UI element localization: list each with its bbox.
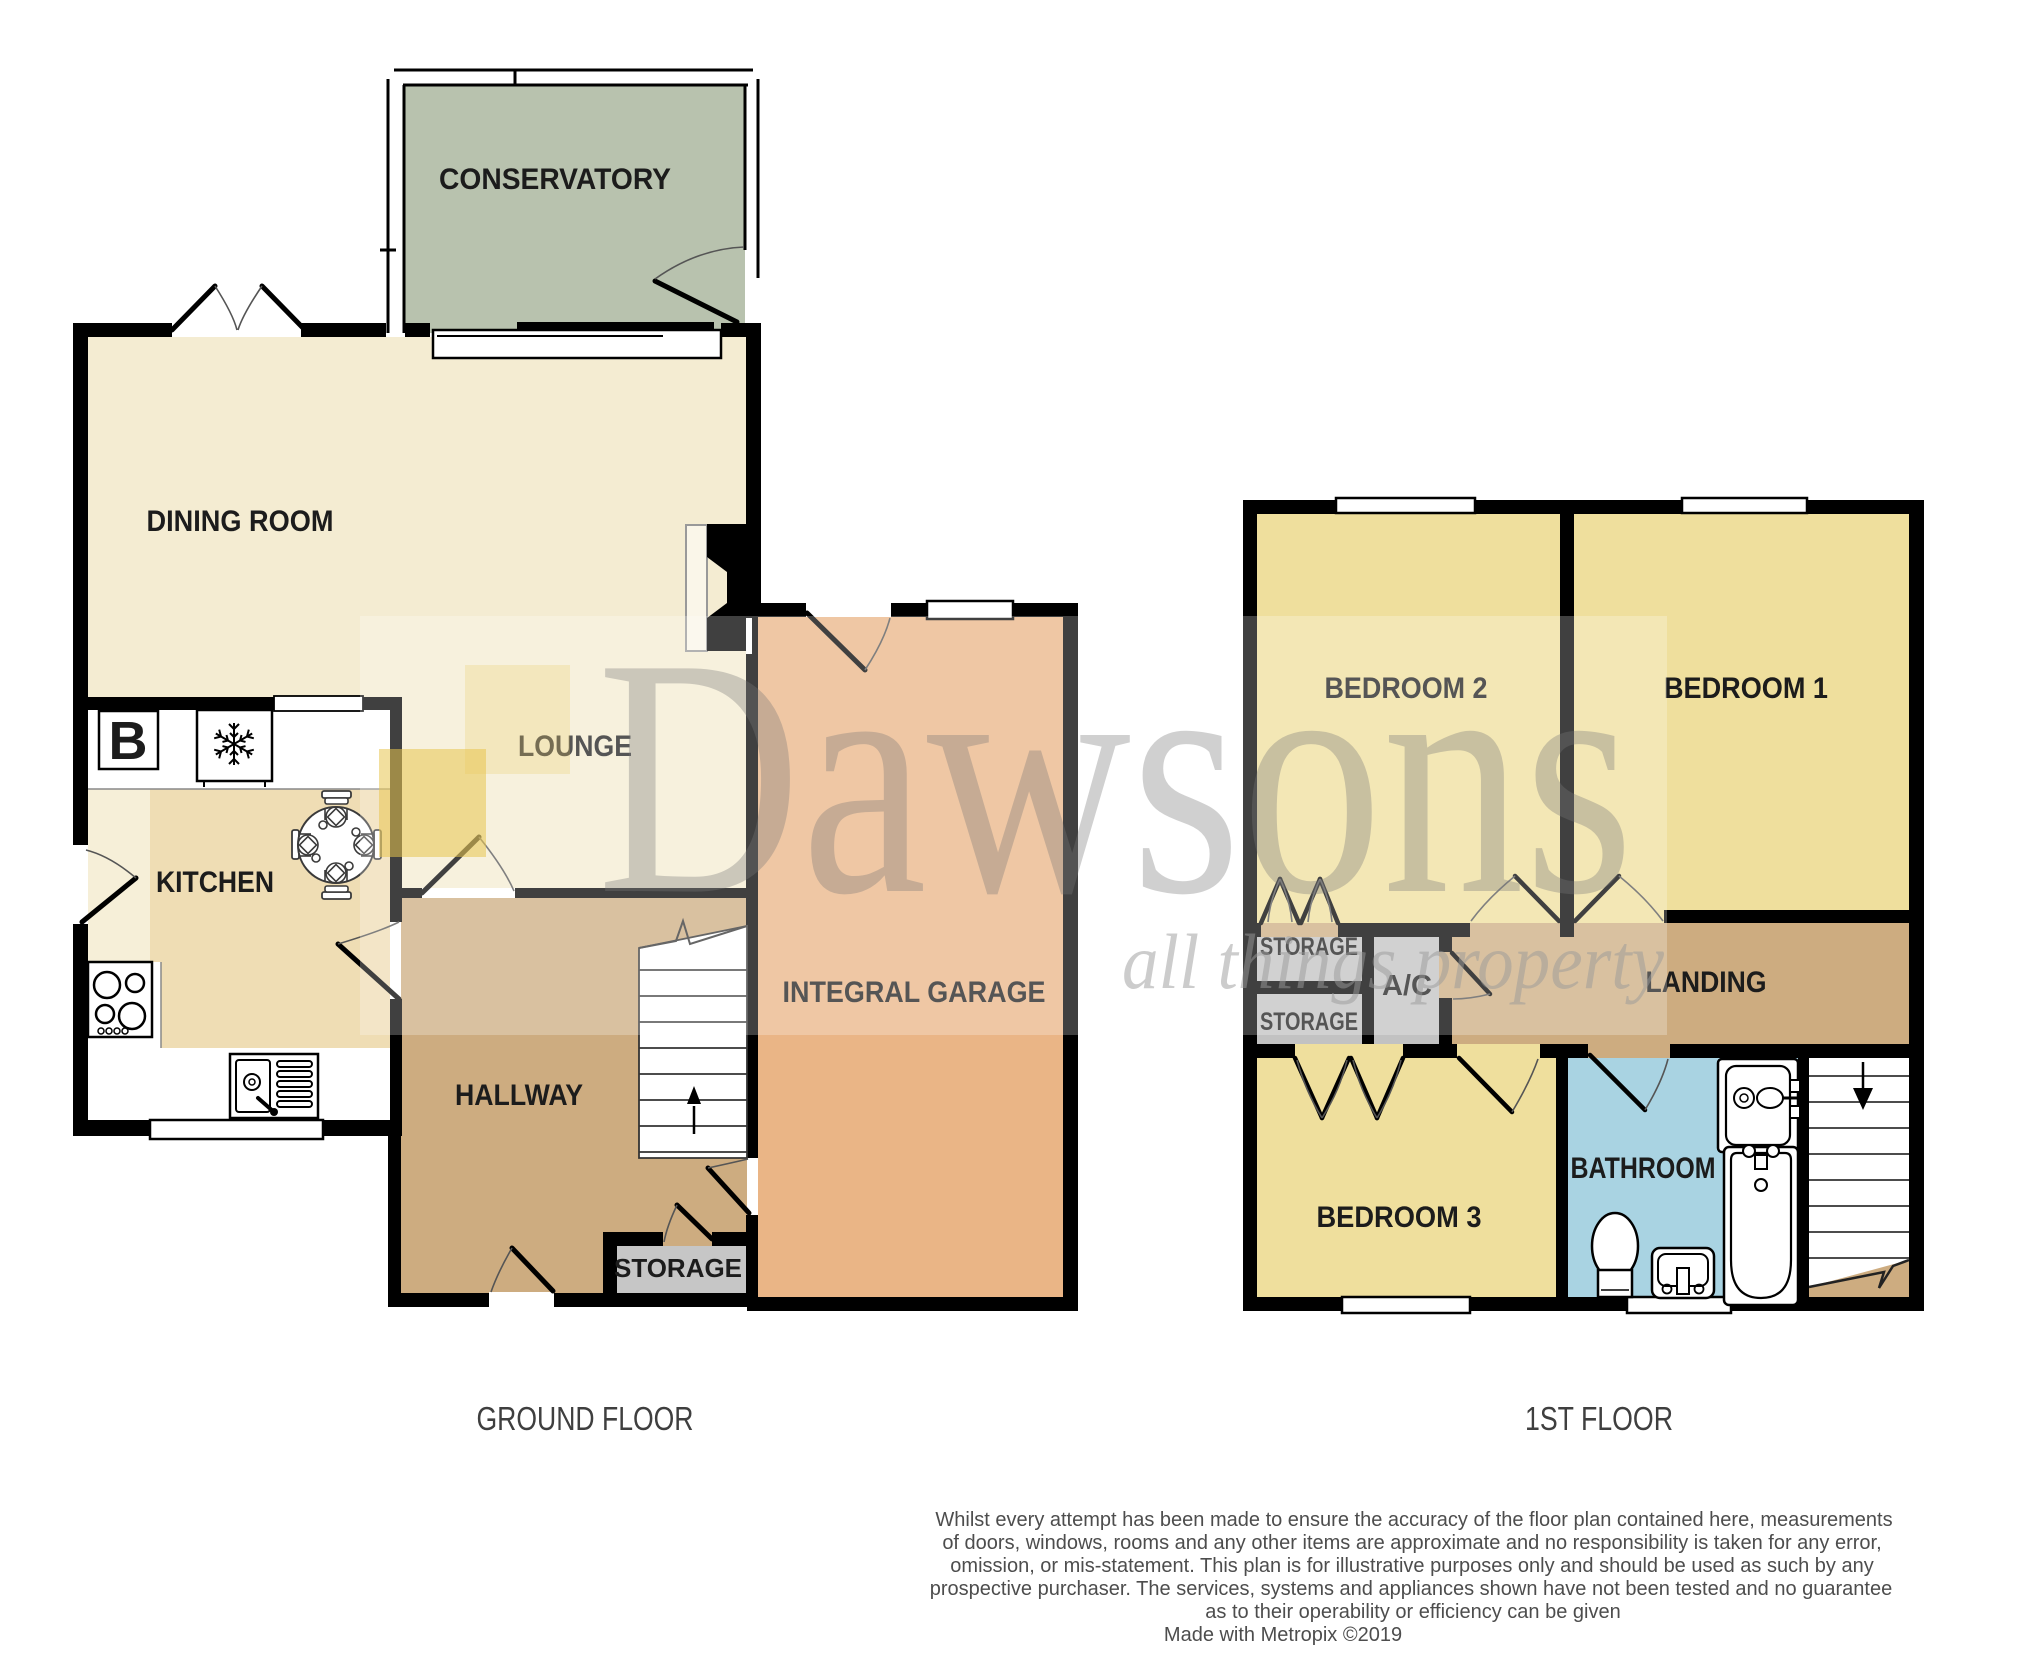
svg-text:GROUND FLOOR: GROUND FLOOR (477, 1400, 694, 1437)
svg-text:Dawsons: Dawsons (597, 588, 1634, 965)
svg-text:omission, or mis-statement. Th: omission, or mis-statement. This plan is… (950, 1555, 1873, 1577)
svg-text:B: B (109, 711, 148, 771)
svg-text:all things property: all things property (1122, 918, 1664, 1005)
svg-text:CONSERVATORY: CONSERVATORY (439, 163, 671, 196)
svg-text:Whilst every attempt has been: Whilst every attempt has been made to en… (935, 1509, 1892, 1531)
svg-text:STORAGE: STORAGE (614, 1253, 742, 1283)
svg-text:DINING ROOM: DINING ROOM (147, 505, 334, 538)
svg-text:prospective purchaser. The ser: prospective purchaser. The services, sys… (930, 1578, 1892, 1600)
svg-text:BEDROOM 3: BEDROOM 3 (1317, 1201, 1482, 1234)
svg-text:BATHROOM: BATHROOM (1571, 1152, 1716, 1185)
svg-text:HALLWAY: HALLWAY (455, 1079, 583, 1112)
svg-text:as to their operability or eff: as to their operability or efficiency ca… (1205, 1601, 1620, 1623)
svg-text:KITCHEN: KITCHEN (156, 866, 274, 899)
svg-text:of doors, windows, rooms and a: of doors, windows, rooms and any other i… (942, 1532, 1881, 1554)
svg-text:Made with Metropix ©2019: Made with Metropix ©2019 (1164, 1624, 1402, 1646)
svg-text:1ST FLOOR: 1ST FLOOR (1525, 1400, 1673, 1437)
svg-text:BEDROOM 1: BEDROOM 1 (1664, 672, 1828, 705)
